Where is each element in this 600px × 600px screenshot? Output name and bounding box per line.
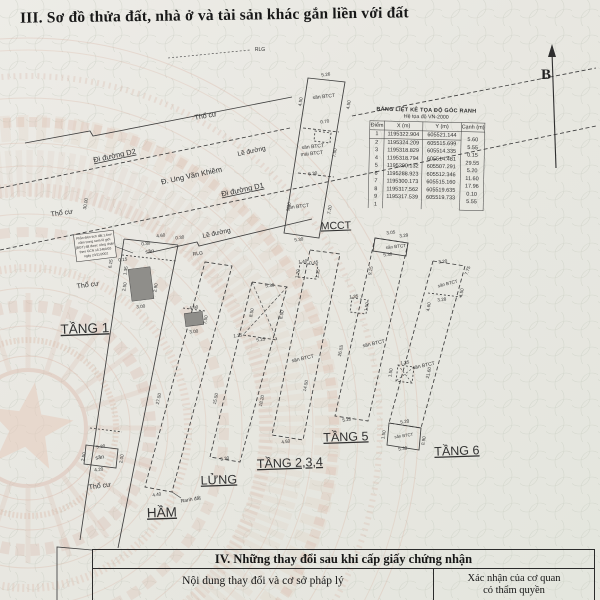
edge-length-column: 5.605.550.1529.555.2011.6017.960.105.55 xyxy=(460,132,485,211)
coordinate-cell: 1195317.539 xyxy=(383,193,422,202)
coordinate-column-header: Điểm xyxy=(370,121,385,130)
coordinate-cell: 1195322.904 xyxy=(384,130,423,139)
dimension-text: 4.60 xyxy=(156,233,166,239)
dimension-text: 3.28 xyxy=(437,297,447,303)
dimension-text: 1.25 xyxy=(233,333,243,339)
dimension-text: 5.30 xyxy=(383,252,393,258)
dimension-text: 0.70 xyxy=(320,119,330,125)
section-4-table: IV. Những thay đổi sau khi cấp giấy chứn… xyxy=(92,549,595,600)
dimension-text: 0.30 xyxy=(141,241,151,247)
plan-label: RLG xyxy=(255,47,265,53)
north-label: B xyxy=(541,67,551,83)
site-plan-drawing: TẦNG 1HẦMLỬNGTẦNG 2,3,4TẦNG 5TẦNG 6MCCTĐ… xyxy=(0,0,600,600)
dimension-text: 5.30 xyxy=(308,171,318,177)
edge-length-value: 5.55 xyxy=(460,198,483,206)
hatch-box-2 xyxy=(184,311,203,326)
note-box: Phần diện tích đất 1,6m²nằm trong ranh l… xyxy=(74,230,117,262)
section-4-col-content: Nội dung thay đổi và cơ sở pháp lý xyxy=(93,569,434,600)
dimension-text: 3.29 xyxy=(399,233,409,239)
coordinate-table-grid: ĐiểmX (m)Y (m)Cạnh (m) 11195322.90460552… xyxy=(368,120,485,210)
hatch-box-1 xyxy=(128,267,154,301)
plan-label: MCCT xyxy=(321,219,352,232)
coordinate-cell: 605519.733 xyxy=(421,194,460,203)
coordinate-cell xyxy=(383,201,422,210)
coordinate-cell: 1 xyxy=(370,130,385,139)
dimension-text: 5.26 xyxy=(321,72,331,78)
plan-label: sân xyxy=(95,454,105,461)
coordinate-cell: 605521.144 xyxy=(423,131,462,140)
section-4-col-confirm: Xác nhận của cơ quan có thẩm quyền xyxy=(434,569,594,600)
plan-label: TẦNG 6 xyxy=(434,442,480,459)
dimension-text: 3.05 xyxy=(386,230,396,236)
plan-label: TẦNG 5 xyxy=(323,428,369,445)
dimension-text: 1.40 xyxy=(298,259,308,265)
dimension-text: 5.30 xyxy=(294,237,304,243)
plan-label: HẦM xyxy=(147,504,178,520)
plan-label: TẦNG 2,3,4 xyxy=(257,454,324,471)
plan-label: LỬNG xyxy=(200,471,237,487)
dimension-text: 5.30 xyxy=(265,283,275,289)
dimension-text: 5.25 xyxy=(256,337,266,343)
plan-label: TẦNG 1 xyxy=(60,320,109,337)
coordinate-cell xyxy=(421,201,460,210)
section-4-header: IV. Những thay đổi sau khi cấp giấy chứn… xyxy=(93,550,594,569)
dimension-text: 1.35 xyxy=(349,294,359,300)
section-4-col-confirm-line2: có thẩm quyền xyxy=(434,585,594,597)
dimension-text: 3.20 xyxy=(438,259,448,265)
section-4-col-confirm-line1: Xác nhận của cơ quan xyxy=(434,573,594,585)
plan-label: sân xyxy=(145,248,155,255)
coordinate-cell: 1 xyxy=(368,200,383,208)
dimension-text: 0.30 xyxy=(175,235,185,241)
dimension-text: 0.45 xyxy=(309,260,319,266)
coordinate-column-header: Cạnh (m) xyxy=(461,123,485,132)
dimension-text: 0.15 xyxy=(118,257,128,263)
dimension-text: 1.35 xyxy=(400,360,410,366)
land-certificate-page: TẦNG 1HẦMLỬNGTẦNG 2,3,4TẦNG 5TẦNG 6MCCTĐ… xyxy=(0,0,600,600)
coordinate-table: BẢNG LIỆT KÊ TỌA ĐỘ GÓC RANH Hệ tọa độ V… xyxy=(368,106,483,211)
